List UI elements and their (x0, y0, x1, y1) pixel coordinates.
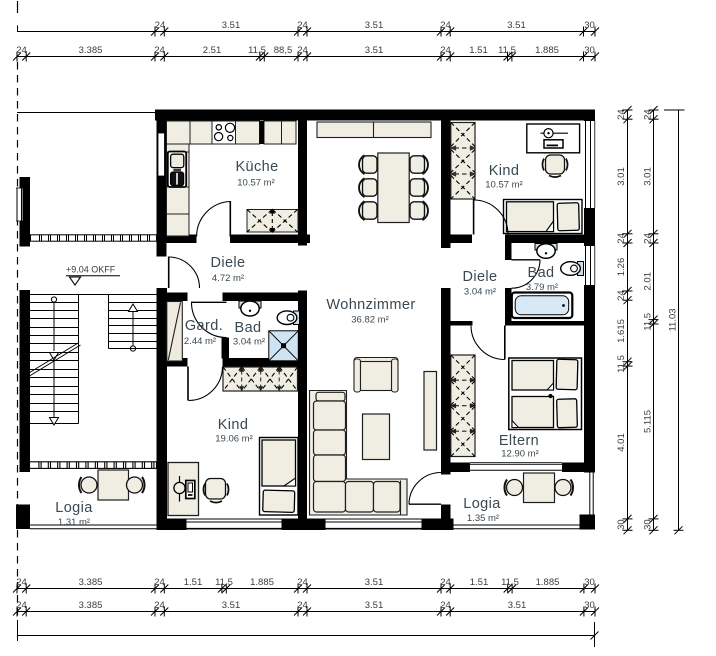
svg-text:3.79 m²: 3.79 m² (526, 282, 558, 293)
svg-text:10.57 m²: 10.57 m² (485, 180, 523, 191)
svg-text:24: 24 (616, 290, 627, 301)
svg-text:24: 24 (440, 600, 451, 611)
svg-text:Eltern: Eltern (499, 433, 539, 449)
svg-text:24: 24 (440, 45, 451, 56)
svg-text:5.115: 5.115 (643, 410, 654, 433)
svg-text:1.51: 1.51 (469, 45, 488, 56)
svg-text:30: 30 (643, 519, 654, 530)
svg-text:24: 24 (643, 109, 654, 120)
svg-text:24: 24 (440, 577, 451, 588)
svg-text:4.01: 4.01 (616, 433, 627, 452)
svg-text:11,5: 11,5 (498, 45, 516, 56)
svg-text:11,5: 11,5 (215, 577, 233, 588)
svg-text:3.51: 3.51 (365, 577, 384, 588)
svg-text:24: 24 (297, 20, 308, 31)
svg-text:+9.04 OKFF: +9.04 OKFF (66, 265, 116, 275)
svg-text:3.385: 3.385 (79, 600, 103, 611)
svg-text:3.51: 3.51 (222, 600, 241, 611)
svg-text:88,5: 88,5 (274, 45, 293, 56)
svg-text:1.885: 1.885 (536, 577, 560, 588)
svg-text:30: 30 (584, 20, 595, 31)
svg-text:24: 24 (155, 20, 166, 31)
svg-text:30: 30 (584, 45, 595, 56)
svg-text:3.51: 3.51 (365, 20, 384, 31)
svg-text:24: 24 (154, 577, 165, 588)
svg-text:30: 30 (584, 600, 595, 611)
svg-text:11,5: 11,5 (616, 355, 627, 373)
svg-text:Logia: Logia (55, 500, 93, 516)
svg-text:24: 24 (616, 109, 627, 120)
svg-text:3.51: 3.51 (508, 600, 527, 611)
svg-text:1.885: 1.885 (250, 577, 274, 588)
svg-text:Logia: Logia (463, 496, 501, 512)
svg-text:2.44 m²: 2.44 m² (184, 336, 216, 347)
svg-text:24: 24 (16, 45, 27, 56)
svg-text:Bad: Bad (235, 320, 262, 336)
svg-text:3.01: 3.01 (643, 167, 654, 186)
svg-text:19.06 m²: 19.06 m² (215, 434, 253, 445)
svg-text:3.04 m²: 3.04 m² (464, 287, 496, 298)
svg-text:2.01: 2.01 (643, 272, 654, 291)
svg-text:1.51: 1.51 (470, 577, 489, 588)
svg-text:3.51: 3.51 (365, 600, 384, 611)
svg-text:Wohnzimmer: Wohnzimmer (326, 297, 415, 313)
svg-text:1.615: 1.615 (616, 319, 627, 343)
svg-text:24: 24 (643, 233, 654, 244)
svg-text:11,5: 11,5 (248, 45, 266, 56)
svg-text:Kind: Kind (218, 417, 249, 433)
svg-text:30: 30 (584, 577, 595, 588)
svg-text:24: 24 (154, 45, 165, 56)
svg-text:3.51: 3.51 (365, 45, 384, 56)
svg-text:1.26: 1.26 (616, 258, 627, 277)
svg-text:24: 24 (297, 577, 308, 588)
svg-text:1.885: 1.885 (535, 45, 559, 56)
svg-text:Gard.: Gard. (185, 318, 223, 334)
svg-text:36.82 m²: 36.82 m² (351, 315, 389, 326)
svg-text:11,5: 11,5 (643, 313, 654, 331)
svg-text:3.51: 3.51 (507, 20, 526, 31)
svg-text:2.51: 2.51 (203, 45, 222, 56)
svg-text:Bad: Bad (528, 265, 555, 281)
svg-text:4.72 m²: 4.72 m² (212, 273, 244, 284)
svg-text:Diele: Diele (210, 255, 245, 271)
svg-text:24: 24 (297, 45, 308, 56)
svg-text:1.51: 1.51 (184, 577, 203, 588)
svg-text:24: 24 (297, 600, 308, 611)
svg-text:Kind: Kind (489, 163, 520, 179)
svg-text:Küche: Küche (235, 159, 278, 175)
svg-text:1.35 m²: 1.35 m² (467, 513, 499, 524)
svg-text:11.03: 11.03 (668, 308, 679, 331)
svg-text:24: 24 (616, 233, 627, 244)
svg-text:24: 24 (154, 600, 165, 611)
svg-text:3.385: 3.385 (79, 45, 103, 56)
svg-text:24: 24 (16, 600, 27, 611)
svg-text:24: 24 (440, 20, 451, 31)
svg-text:10.57 m²: 10.57 m² (237, 178, 275, 189)
svg-text:24: 24 (16, 577, 27, 588)
svg-text:3.04 m²: 3.04 m² (233, 337, 265, 348)
svg-text:12.90 m²: 12.90 m² (501, 449, 539, 460)
svg-text:3.385: 3.385 (79, 577, 103, 588)
svg-text:Diele: Diele (462, 269, 497, 285)
svg-text:11,5: 11,5 (501, 577, 519, 588)
svg-text:1.31 m²: 1.31 m² (58, 517, 90, 528)
svg-text:30: 30 (616, 519, 627, 530)
svg-text:3.51: 3.51 (222, 20, 241, 31)
svg-text:3.01: 3.01 (616, 167, 627, 186)
